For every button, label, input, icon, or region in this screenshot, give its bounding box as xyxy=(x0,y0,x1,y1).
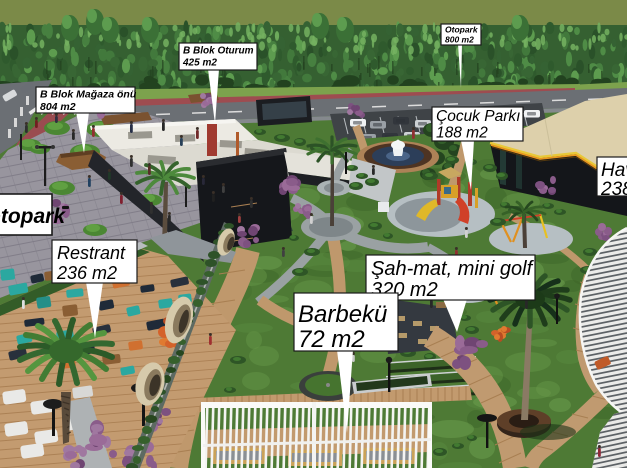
svg-text:Havuz: Havuz xyxy=(601,160,627,181)
svg-text:Barbekü: Barbekü xyxy=(298,301,387,328)
svg-text:238 m: 238 m xyxy=(600,179,627,200)
svg-text:804 m2: 804 m2 xyxy=(40,101,76,113)
svg-text:Çocuk Parkı: Çocuk Parkı xyxy=(436,108,520,125)
svg-text:otopark: otopark xyxy=(0,205,66,228)
svg-text:236 m2: 236 m2 xyxy=(56,263,117,283)
svg-text:Şah-mat, mini golf: Şah-mat, mini golf xyxy=(371,258,535,280)
svg-text:425 m2: 425 m2 xyxy=(182,58,217,69)
svg-text:Otopark: Otopark xyxy=(445,24,479,34)
svg-text:800 m2: 800 m2 xyxy=(445,34,474,44)
svg-text:Restrant: Restrant xyxy=(57,243,126,263)
svg-text:B Blok Oturum: B Blok Oturum xyxy=(183,46,254,57)
svg-text:B Blok Mağaza önü: B Blok Mağaza önü xyxy=(40,88,137,100)
svg-text:72 m2: 72 m2 xyxy=(298,326,365,353)
svg-text:188 m2: 188 m2 xyxy=(436,125,488,142)
